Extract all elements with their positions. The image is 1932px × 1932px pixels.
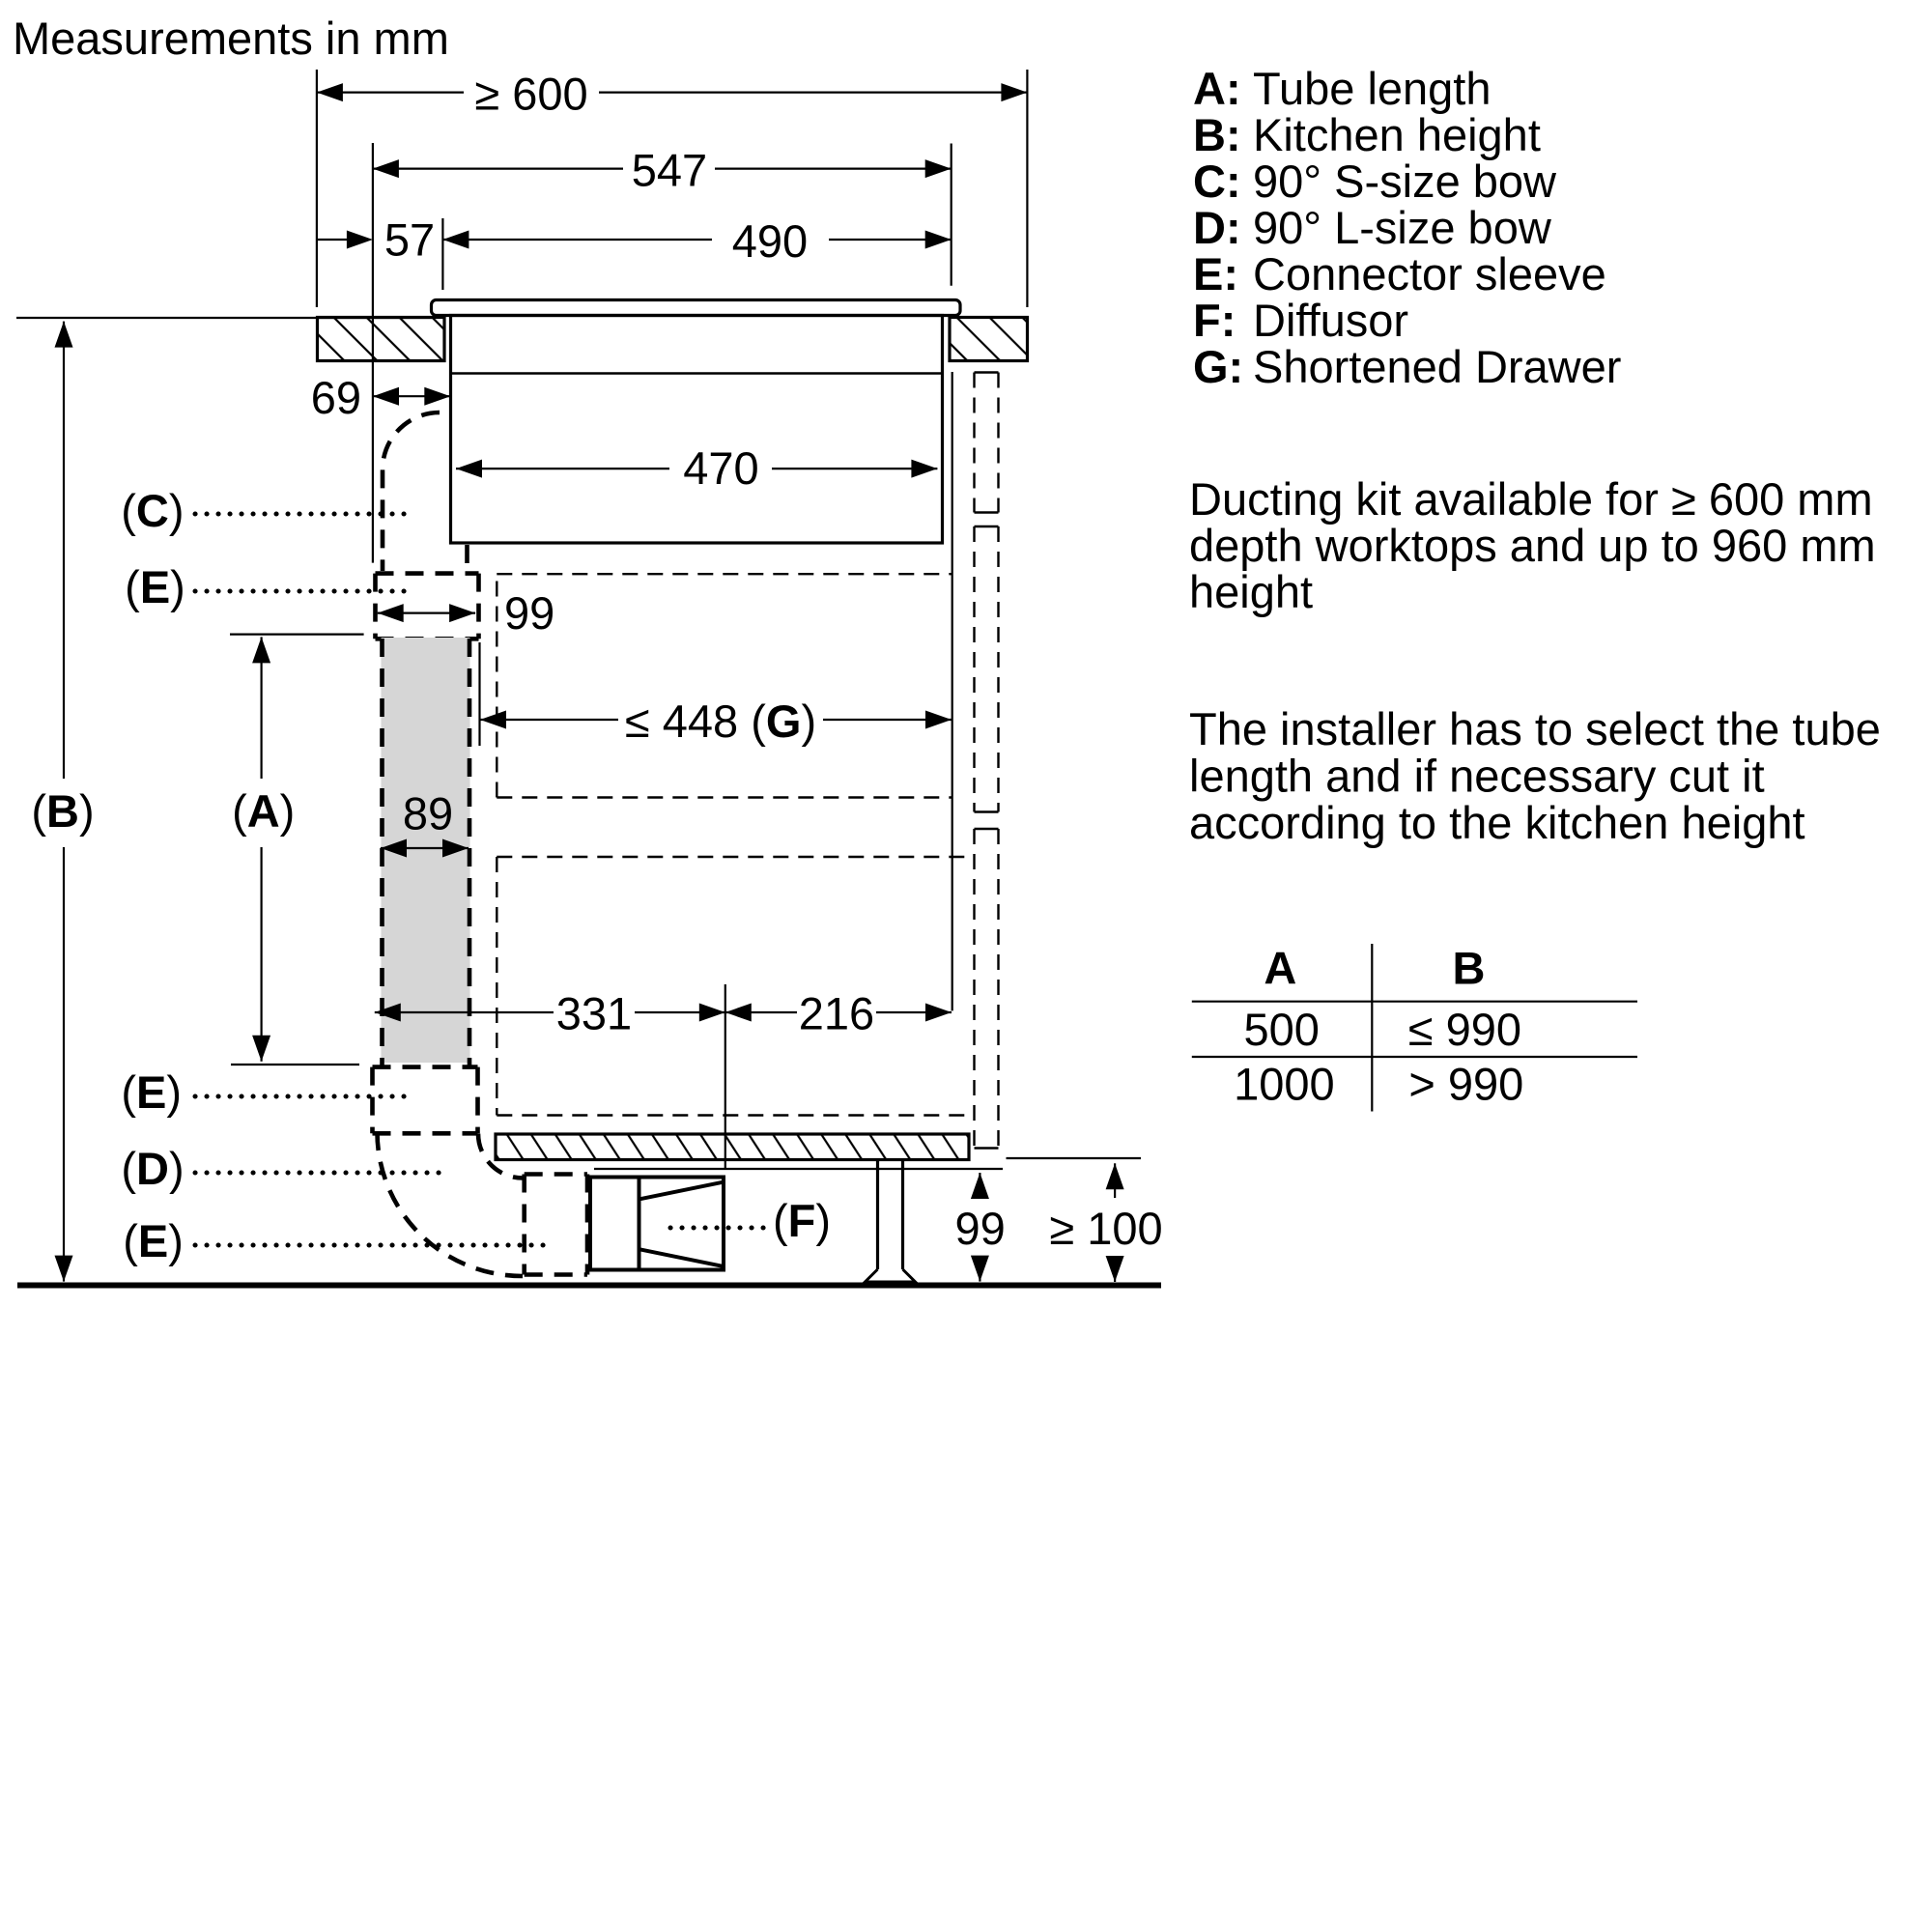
- svg-text:(D): (D): [121, 1143, 184, 1194]
- svg-text:(E): (E): [125, 561, 185, 612]
- svg-text:D:: D:: [1193, 202, 1241, 253]
- svg-text:Kitchen height: Kitchen height: [1253, 109, 1541, 160]
- svg-text:(F): (F): [773, 1195, 831, 1246]
- svg-text:depth worktops and up to 960 m: depth worktops and up to 960 mm: [1189, 520, 1876, 571]
- svg-text:99: 99: [504, 587, 554, 639]
- svg-text:Ducting kit available for ≥ 60: Ducting kit available for ≥ 600 mm: [1189, 473, 1873, 525]
- svg-text:(A): (A): [232, 785, 295, 837]
- svg-text:≤ 448 (G): ≤ 448 (G): [625, 696, 816, 747]
- svg-text:57: 57: [384, 214, 435, 266]
- svg-text:99: 99: [955, 1203, 1006, 1254]
- svg-text:331: 331: [556, 988, 632, 1039]
- svg-text:≥ 600: ≥ 600: [474, 69, 587, 120]
- svg-text:(C): (C): [121, 485, 184, 536]
- svg-text:470: 470: [683, 442, 758, 494]
- svg-text:A:: A:: [1193, 63, 1241, 114]
- svg-text:1000: 1000: [1234, 1058, 1335, 1109]
- svg-text:C:: C:: [1193, 156, 1241, 207]
- svg-text:500: 500: [1243, 1004, 1319, 1055]
- svg-text:(E): (E): [121, 1066, 182, 1118]
- svg-text:B:: B:: [1193, 109, 1241, 160]
- svg-text:490: 490: [732, 215, 808, 267]
- svg-text:≤ 990: ≤ 990: [1408, 1004, 1521, 1055]
- svg-text:69: 69: [311, 372, 361, 423]
- svg-text:G:: G:: [1193, 341, 1243, 392]
- svg-text:height: height: [1189, 566, 1313, 617]
- svg-text:Measurements in mm: Measurements in mm: [13, 13, 449, 64]
- svg-text:F:: F:: [1193, 295, 1236, 346]
- svg-text:length and if necessary cut it: length and if necessary cut it: [1189, 751, 1765, 802]
- svg-text:> 990: > 990: [1408, 1058, 1523, 1109]
- svg-text:according to the kitchen heigh: according to the kitchen height: [1189, 797, 1805, 848]
- svg-text:216: 216: [799, 988, 874, 1039]
- svg-text:B: B: [1453, 943, 1486, 994]
- svg-text:A: A: [1264, 943, 1296, 994]
- svg-text:Connector sleeve: Connector sleeve: [1253, 248, 1606, 299]
- svg-text:Shortened Drawer: Shortened Drawer: [1253, 341, 1621, 392]
- svg-text:90° S-size bow: 90° S-size bow: [1253, 156, 1557, 207]
- svg-text:(E): (E): [123, 1215, 184, 1266]
- svg-text:Diffusor: Diffusor: [1253, 295, 1408, 346]
- svg-text:(B): (B): [31, 785, 94, 837]
- svg-text:The installer has to select th: The installer has to select the tube: [1189, 703, 1881, 754]
- svg-text:Tube length: Tube length: [1253, 63, 1492, 114]
- svg-text:89: 89: [403, 788, 453, 839]
- svg-text:547: 547: [632, 145, 707, 196]
- svg-text:≥ 100: ≥ 100: [1049, 1203, 1162, 1254]
- svg-text:E:: E:: [1193, 248, 1238, 299]
- svg-text:90° L-size bow: 90° L-size bow: [1253, 202, 1552, 253]
